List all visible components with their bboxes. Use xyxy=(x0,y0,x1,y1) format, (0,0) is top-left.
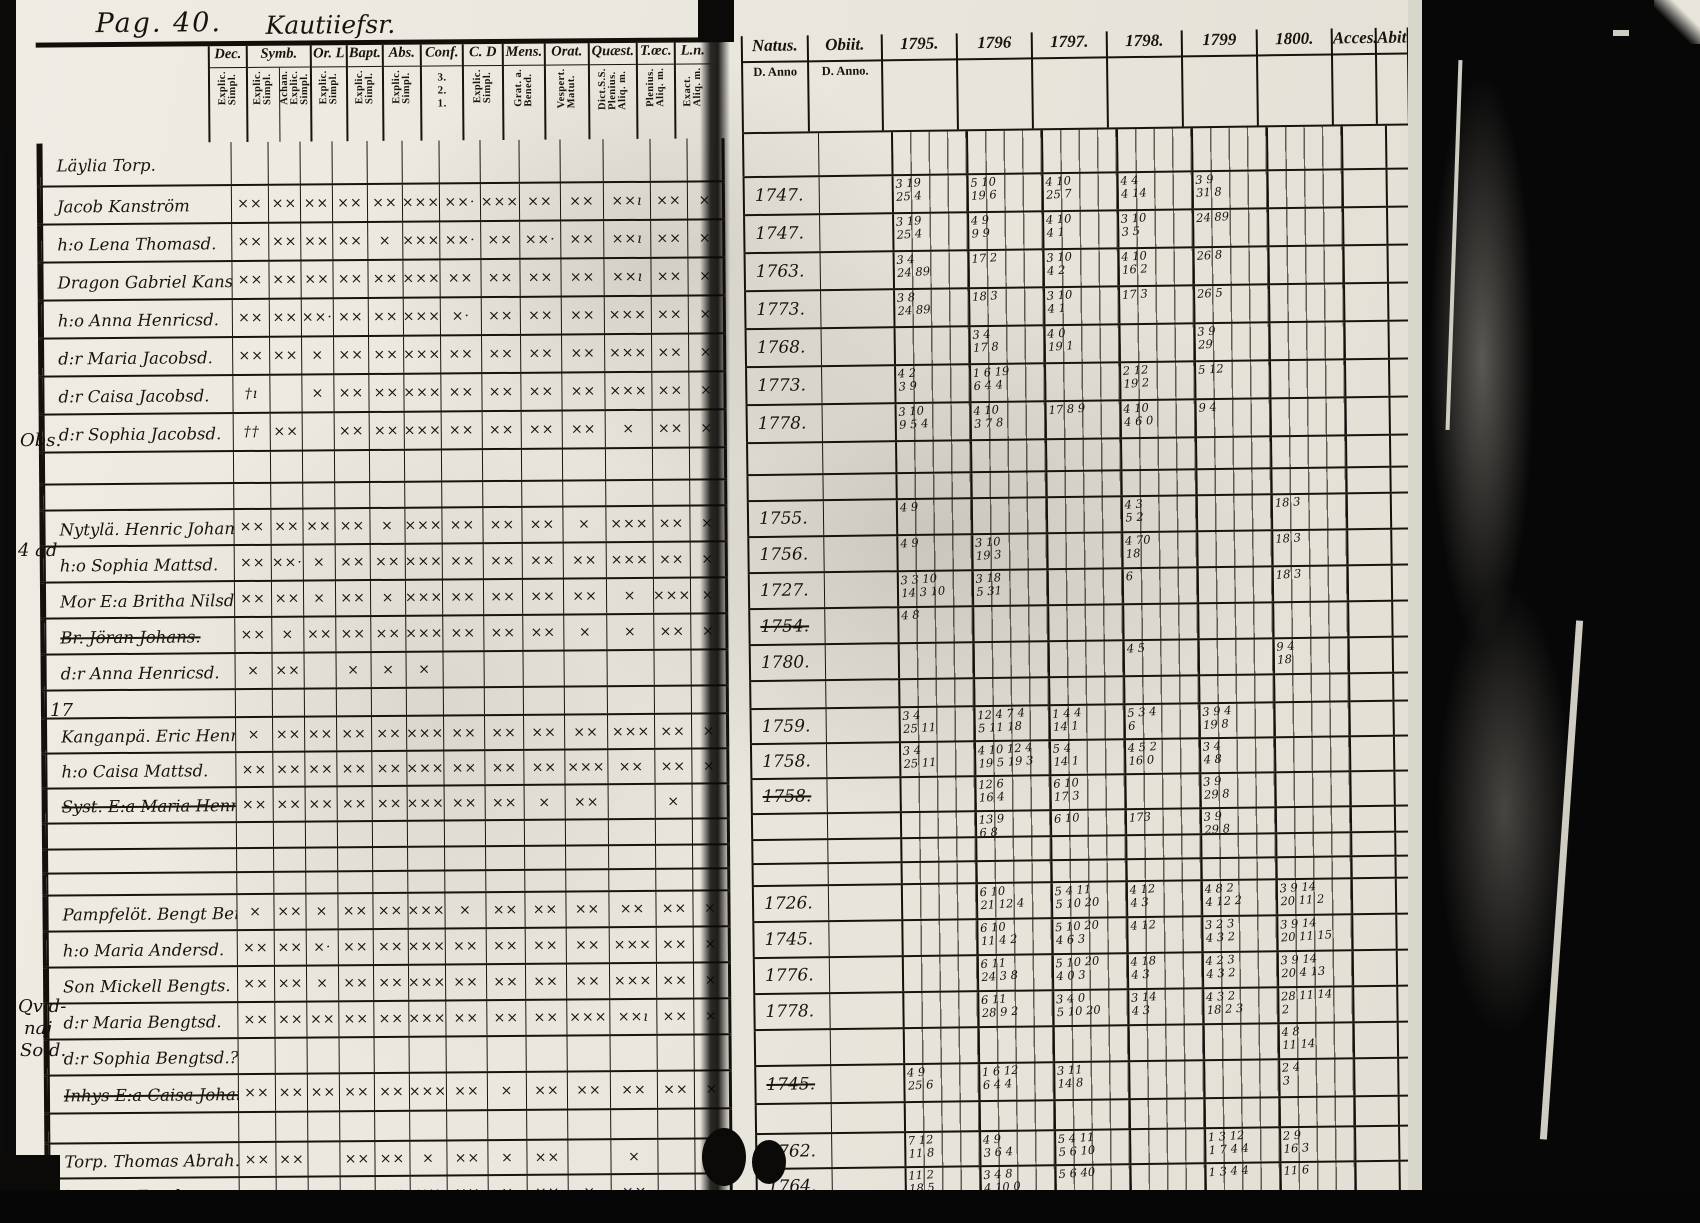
register-row: Mor E:a Britha Nilsd.×××××××××××××××××××… xyxy=(40,578,728,619)
year-cell: 17 3 xyxy=(1118,286,1193,323)
subcolumn-label: Plenius. Aliq. m. xyxy=(646,68,666,107)
mark-cell xyxy=(657,1140,694,1173)
mark-cell: ×× xyxy=(268,262,300,298)
year-cell: 1 4 4 14 1 xyxy=(1048,705,1123,739)
column-sublabel xyxy=(1258,55,1331,80)
mark-cell: ×× xyxy=(371,717,406,750)
mark-cell: ××× xyxy=(404,412,441,448)
obiit-cell xyxy=(821,328,894,365)
subheader-wrap: Explic. Simpl. xyxy=(464,66,503,140)
mark-cell xyxy=(369,483,404,507)
mark-cell xyxy=(236,873,273,893)
mark-cell: ××× xyxy=(604,335,651,371)
attendance-entry: 4 0 19 1 xyxy=(1047,326,1074,353)
attendance-entry: 18 3 xyxy=(972,289,998,303)
attendance-entry: 26 5 xyxy=(1197,286,1223,300)
mark-cell: ×× xyxy=(485,786,524,819)
mark-cell: ×× xyxy=(444,786,485,819)
year-cell: 3 4 25 11 xyxy=(899,707,974,741)
acces-cell xyxy=(1343,284,1387,321)
subcolumn: Grat. a. Bened. xyxy=(504,66,545,140)
acces-cell xyxy=(1350,807,1394,832)
year-cell xyxy=(1050,836,1125,859)
mark-cell xyxy=(337,822,372,846)
mark-cell: ×× xyxy=(333,375,368,411)
mark-cell xyxy=(305,848,337,870)
mark-cell: ×× xyxy=(486,929,525,963)
subheader-wrap: Explic. Simpl. xyxy=(312,67,347,141)
year-cell: 13 9 6 8 xyxy=(975,811,1050,836)
year-cell xyxy=(1045,471,1120,496)
mark-cell: × xyxy=(563,615,606,649)
register-row: h:o Sophia Mattsd.××××·×××××××××××××××××… xyxy=(40,542,728,583)
attendance-entry: 5 4 11 5 6 10 xyxy=(1057,1131,1095,1158)
mark-cell: ×× xyxy=(271,582,303,616)
mark-cell: ×× xyxy=(274,1003,306,1037)
mark-cell: × xyxy=(303,581,335,615)
mark-cell: ×× xyxy=(652,507,689,541)
column-label: Or. L xyxy=(312,45,346,67)
year-cell: 18 3 xyxy=(1271,530,1346,565)
year-cell: 1 6 19 6 4 4 xyxy=(969,364,1044,401)
attendance-entry: 3 19 25 4 xyxy=(895,176,922,203)
mark-cell: ×× xyxy=(654,715,691,748)
mark-cell: ×× xyxy=(335,617,370,651)
obiit-cell xyxy=(826,778,899,812)
mark-cell xyxy=(444,821,485,845)
mark-cell: ×× xyxy=(231,224,268,260)
attendance-entry: 3 4 17 8 xyxy=(972,327,999,354)
attendance-entry: 3 9 14 20 4 13 xyxy=(1280,952,1325,980)
year-cell: 5 10 20 4 6 3 xyxy=(1051,918,1126,953)
mark-cell xyxy=(654,687,691,713)
year-cell xyxy=(1120,470,1195,495)
attendance-entry: 3 9 29 xyxy=(1197,325,1217,351)
mark-cell xyxy=(608,846,655,868)
attendance-entry: 4 8 11 14 xyxy=(1281,1024,1316,1051)
acces-cell xyxy=(1344,360,1388,397)
subcolumn-label: Explic. Simpl. xyxy=(473,69,493,103)
margin-note: 17 xyxy=(50,700,73,721)
mark-cell xyxy=(238,1039,275,1073)
year-cell: 5 4 14 1 xyxy=(1049,740,1124,774)
mark-cell xyxy=(307,1038,339,1072)
mark-cell: × xyxy=(562,507,605,541)
mark-cell xyxy=(407,847,444,869)
attendance-entry: 4 8 xyxy=(901,608,920,622)
mark-cell: × xyxy=(606,579,653,613)
obiit-cell xyxy=(831,1103,904,1132)
acces-cell xyxy=(1346,494,1390,529)
year-cell: 4 4 4 14 xyxy=(1117,172,1192,209)
year-cell xyxy=(895,441,970,472)
mark-cell: × xyxy=(301,337,333,373)
year-cell xyxy=(899,777,974,811)
column-sublabel: D. Anno xyxy=(743,62,807,87)
acces-cell xyxy=(1345,468,1389,493)
mark-cell xyxy=(273,873,305,893)
year-cell: 17 2 xyxy=(968,250,1043,287)
attendance-entry: 6 xyxy=(1125,570,1133,583)
acces-cell xyxy=(1352,987,1396,1022)
mark-cell: ×× xyxy=(442,580,483,614)
obiit-cell xyxy=(818,132,892,175)
mark-cell: × xyxy=(306,966,338,1000)
obiit-cell xyxy=(829,993,902,1028)
mark-cell xyxy=(270,452,302,482)
year-cell: 173 xyxy=(1125,809,1200,834)
subcolumn: Vespert. Matut. xyxy=(546,65,589,139)
obiit-cell xyxy=(830,1029,903,1064)
mark-cell xyxy=(443,688,484,714)
mark-cell: ××× xyxy=(607,715,654,748)
year-cell xyxy=(1197,603,1272,638)
obiit-cell xyxy=(825,644,898,679)
mark-cell xyxy=(523,688,564,714)
mark-cell xyxy=(371,689,406,715)
mark-cell: ×× xyxy=(563,543,606,577)
mark-cell: ××× xyxy=(405,616,442,650)
mark-cell: ××ı xyxy=(603,221,650,257)
mark-cell: ×× xyxy=(300,261,332,297)
person-name: h:o Anna Henricsd. xyxy=(38,300,232,338)
mark-cell: ×× xyxy=(656,928,693,962)
year-cell xyxy=(901,862,976,883)
mark-cell: ×× xyxy=(561,297,604,333)
mark-cell xyxy=(657,1110,694,1138)
mark-cell: ×× xyxy=(235,753,272,786)
mark-cell: × xyxy=(303,545,335,579)
attendance-entry: 3 11 14 8 xyxy=(1057,1063,1084,1090)
mark-cell: ×× xyxy=(372,787,407,820)
examination-table: Dec.Explic. Simpl.Symb.Explic. Simpl.Ach… xyxy=(36,37,733,1223)
year-cell xyxy=(900,812,975,837)
mark-cell: ×× xyxy=(334,509,369,543)
mark-cell: ×× xyxy=(524,893,565,927)
year-cell xyxy=(1124,774,1199,808)
person-name: d:r Anna Henricsd. xyxy=(41,654,235,690)
year-cell: 3 4 24 89 xyxy=(893,251,968,288)
year-cell xyxy=(904,1102,979,1131)
natus-year xyxy=(751,840,827,863)
year-cell xyxy=(1267,208,1342,245)
acces-cell xyxy=(1346,530,1390,565)
attendance-entry: 3 9 29 8 xyxy=(1203,809,1230,833)
year-cell: 4 10 16 2 xyxy=(1118,248,1193,285)
attendance-entry: 3 10 4 1 xyxy=(1046,288,1073,315)
mark-cell xyxy=(406,688,443,714)
year-cell: 7 12 11 8 xyxy=(904,1132,979,1166)
attendance-entry: 17 3 xyxy=(1122,287,1148,301)
register-row: d:r Anna Henricsd.×××××× xyxy=(41,650,729,691)
mark-cell: × xyxy=(235,718,272,751)
register-row: Inhys E:a Caisa Johansdinne×××××××××××××… xyxy=(44,1071,732,1114)
mark-cell: ×× xyxy=(520,336,561,372)
mark-cell: ×× xyxy=(610,1072,657,1108)
column-sublabel xyxy=(1183,56,1256,81)
mark-cell xyxy=(305,822,337,846)
mark-cell: ×× xyxy=(270,510,302,544)
year-cell: 4 10 4 6 0 xyxy=(1120,400,1195,437)
year-cell: 4 10 4 1 xyxy=(1042,211,1117,248)
mark-cell: × xyxy=(487,1141,526,1174)
attendance-entry: 13 9 6 8 xyxy=(978,812,1005,836)
column-label: 1799 xyxy=(1183,29,1256,57)
register-row: Son Mickell Bengts.×××××××××××××××××××××… xyxy=(43,963,731,1004)
person-name: h:o Lena Thomasd. xyxy=(37,224,231,262)
year-cell: 18 3 xyxy=(968,288,1043,325)
natus-year: 1755. xyxy=(747,501,823,536)
year-cell: 17 8 9 xyxy=(1045,401,1120,438)
year-cell xyxy=(1267,170,1342,207)
column-label: Bapt. xyxy=(348,45,382,67)
column-sublabel xyxy=(1333,55,1375,80)
mark-cell: ×× xyxy=(482,508,521,542)
mark-cell xyxy=(487,1111,526,1139)
acces-cell xyxy=(1348,638,1392,673)
mark-cell: ××× xyxy=(566,1000,609,1034)
person-name: h:o Sophia Mattsd. xyxy=(40,546,234,582)
mark-cell: ××ı xyxy=(603,183,650,219)
column-sublabel xyxy=(958,59,1031,84)
mark-cell: × xyxy=(655,785,692,818)
attendance-entry: 4 10 12 4 19 5 19 3 xyxy=(977,741,1033,769)
obiit-cell xyxy=(828,885,901,920)
year-cell: 3 18 5 31 xyxy=(972,570,1047,605)
year-cell xyxy=(1269,360,1344,397)
attendance-entry: 6 10 11 4 2 xyxy=(980,920,1018,947)
mark-cell: ×× xyxy=(335,545,370,579)
mark-cell: ×× xyxy=(607,750,654,783)
mark-cell: ×× xyxy=(236,788,273,821)
mark-cell: × xyxy=(367,223,402,259)
column-group-bapt: Bapt.Explic. Simpl. xyxy=(346,45,383,141)
mark-cell xyxy=(567,1036,610,1070)
obiit-cell xyxy=(824,572,897,607)
person-name: d:r Sophia Bengtsd.? xyxy=(44,1039,238,1075)
mark-cell: ××× xyxy=(402,184,439,220)
mark-cell: ×× xyxy=(231,186,268,222)
person-name: h:o Caisa Mattsd. xyxy=(41,753,235,788)
mark-cell: ××· xyxy=(301,299,333,335)
mark-cell: × xyxy=(524,786,565,819)
subcolumn-label: Dict.S.S. Plenius. Aliq. m. xyxy=(598,68,628,110)
natus-year xyxy=(746,475,822,500)
year-cell xyxy=(1268,246,1343,283)
year-cell: 24 89 xyxy=(1192,209,1267,246)
person-name xyxy=(39,452,233,484)
attendance-entry: 4 9 xyxy=(899,500,918,514)
year-cell xyxy=(971,498,1046,533)
mark-cell xyxy=(483,652,522,686)
attendance-entry: 4 4 4 14 xyxy=(1120,173,1147,200)
subcolumn-label: Explic. Simpl. xyxy=(319,70,339,104)
subcolumn: Dict.S.S. Plenius. Aliq. m. xyxy=(590,65,637,139)
margin-note: 4 ad xyxy=(18,540,57,561)
mark-cell xyxy=(526,1110,567,1138)
mark-cell xyxy=(606,651,653,685)
natus-year: 1758. xyxy=(750,779,826,813)
mark-cell: ×× xyxy=(234,618,271,652)
natus-year: 1726. xyxy=(752,886,828,921)
mark-cell xyxy=(275,1113,307,1141)
mark-cell: ×× xyxy=(525,1001,566,1035)
mark-cell: ×× xyxy=(560,259,603,295)
acces-cell xyxy=(1342,246,1386,283)
mark-cell xyxy=(521,482,562,506)
right-page: Natus.D. AnnoObiit.D. Anno.1795.17961797… xyxy=(722,0,1409,1186)
natus-year xyxy=(751,814,827,839)
register-row: Pampfelöt. Bengt Bengts.××××××××××××××××… xyxy=(42,891,730,932)
register-row: d:r Maria Bengtsd.××××××××××××××××××××××… xyxy=(43,999,731,1040)
year-cell: 9 4 xyxy=(1195,399,1270,436)
mark-cell xyxy=(302,413,334,449)
mark-cell: ×× xyxy=(334,413,369,449)
mark-cell: ×× xyxy=(339,1142,374,1175)
mark-cell xyxy=(235,690,272,716)
attendance-entry: 4 18 4 3 xyxy=(1130,954,1157,981)
year-cell xyxy=(1128,1025,1203,1060)
mark-cell xyxy=(524,871,565,891)
mark-cell: ××× xyxy=(402,260,439,296)
register-row xyxy=(39,448,727,485)
mark-cell: ×× xyxy=(275,1143,307,1176)
natus-year: 1778. xyxy=(753,994,829,1029)
year-cell xyxy=(1191,127,1267,170)
mark-cell: ××× xyxy=(405,580,442,614)
register-row: Kanganpä. Eric Henrics.×××××××××××××××××… xyxy=(41,714,729,754)
mark-cell: ×× xyxy=(300,223,332,259)
mark-cell: ×× xyxy=(270,414,302,450)
attendance-entry: 24 89 xyxy=(1196,210,1230,225)
mark-cell xyxy=(487,1037,526,1071)
mark-cell: ×× xyxy=(441,412,482,448)
mark-cell: ×× xyxy=(232,300,269,336)
mark-cell: ×× xyxy=(483,544,522,578)
attendance-entry: 5 4 14 1 xyxy=(1052,741,1079,768)
mark-cell: ×× xyxy=(269,338,301,374)
year-cell xyxy=(1125,835,1200,858)
mark-cell xyxy=(608,785,655,818)
attendance-entry: 3 9 31 8 xyxy=(1195,172,1222,199)
mark-cell: ×× xyxy=(486,1001,525,1035)
edge-streak xyxy=(1613,30,1629,36)
mark-cell xyxy=(562,481,605,505)
person-name: Torp. Thomas Abrah. xyxy=(44,1143,238,1178)
acces-cell xyxy=(1353,1059,1397,1096)
mark-cell: ×× xyxy=(333,337,368,373)
attendance-entry: 3 18 5 31 xyxy=(975,571,1002,598)
year-cell: 3 9 29 8 xyxy=(1200,808,1275,833)
mark-cell: ×× xyxy=(521,412,562,448)
mark-cell xyxy=(230,142,267,184)
subheader-wrap: 3. 2. 1. xyxy=(422,66,463,140)
natus-year xyxy=(755,1104,831,1133)
mark-cell: ×× xyxy=(564,715,607,748)
mark-cell: ××× xyxy=(564,750,607,783)
column-sublabel xyxy=(883,60,956,85)
mark-cell: ××× xyxy=(407,786,444,819)
year-cell xyxy=(895,473,970,498)
year-cell: 4 2 3 4 3 2 xyxy=(1202,952,1277,987)
mark-cell: ×× xyxy=(231,262,268,298)
mark-cell: ××× xyxy=(402,222,439,258)
page-edge xyxy=(1408,0,1422,1190)
attendance-entry: 1 3 12 1 7 4 4 xyxy=(1207,1129,1249,1157)
attendance-entry: 3 9 14 20 11 2 xyxy=(1279,880,1324,908)
mark-cell: ×· xyxy=(306,930,338,964)
mark-cell: ×× xyxy=(368,375,403,411)
year-cell xyxy=(1044,363,1119,400)
year-cell: 3 14 4 3 xyxy=(1127,989,1202,1024)
mark-cell xyxy=(607,687,654,713)
mark-cell: ××× xyxy=(604,297,651,333)
mark-cell xyxy=(372,872,407,892)
mark-cell xyxy=(233,484,270,508)
mark-cell: ×× xyxy=(338,1002,373,1036)
attendance-entry: 173 xyxy=(1129,810,1152,824)
mark-cell: ×× xyxy=(335,581,370,615)
mark-cell xyxy=(409,1111,446,1139)
natus-year xyxy=(754,1030,830,1065)
mark-cell: ×× xyxy=(268,224,300,260)
attendance-entry: 28 11 14 2 xyxy=(1281,987,1334,1015)
year-cell xyxy=(1279,1097,1354,1126)
attendance-entry: 18 3 xyxy=(1275,531,1301,545)
column-group-qust: Quæst.Dict.S.S. Plenius. Aliq. m. xyxy=(588,43,637,139)
attendance-entry: 12 6 16 4 xyxy=(978,777,1005,804)
acces-cell xyxy=(1354,1097,1398,1126)
mark-cell xyxy=(407,821,444,845)
attendance-entry: 17 8 9 xyxy=(1048,402,1085,417)
mark-cell: ×× xyxy=(238,1143,275,1176)
subcolumn-label: Vespert. Matut. xyxy=(557,68,577,108)
mark-cell xyxy=(485,821,524,845)
mark-cell: × xyxy=(271,618,303,652)
mark-cell xyxy=(307,1142,339,1175)
mark-cell: ×× xyxy=(445,965,486,999)
natus-year: 1759. xyxy=(750,709,826,743)
year-cell xyxy=(1122,604,1197,639)
register-row: h:o Caisa Mattsd.×××××××××××××××××××××××… xyxy=(41,749,729,789)
mark-cell xyxy=(653,651,690,685)
mark-cell xyxy=(331,141,366,183)
year-cell: 5 4 11 5 10 20 xyxy=(1051,882,1126,917)
person-name: Son Mickell Bengts. xyxy=(43,967,237,1003)
acces-cell xyxy=(1341,126,1386,169)
mark-cell xyxy=(299,141,331,183)
mark-cell xyxy=(336,689,371,715)
natus-year: 1745. xyxy=(754,1066,830,1103)
mark-cell: ×× xyxy=(481,336,520,372)
mark-cell: ×× xyxy=(483,580,522,614)
year-cell: 3 9 14 20 4 13 xyxy=(1277,951,1352,986)
mark-cell: ×× xyxy=(446,1073,487,1109)
attendance-entry: 3 8 24 89 xyxy=(896,290,931,317)
attendance-entry: 3 10 9 5 4 xyxy=(898,404,929,431)
mark-cell xyxy=(302,483,334,507)
year-cell: 28 11 14 2 xyxy=(1277,987,1352,1022)
attendance-entry: 3 9 14 20 11 15 xyxy=(1280,915,1333,943)
mark-cell xyxy=(334,451,369,481)
attendance-entry: 3 4 24 89 xyxy=(896,252,931,279)
subheader-wrap: Explic. Simpl. xyxy=(348,67,383,141)
mark-cell xyxy=(407,871,444,891)
corner-highlight xyxy=(1654,0,1700,44)
year-cell: 3 11 14 8 xyxy=(1053,1062,1128,1099)
mark-cell: ×× xyxy=(560,221,603,257)
natus-year: 1747. xyxy=(743,177,819,214)
